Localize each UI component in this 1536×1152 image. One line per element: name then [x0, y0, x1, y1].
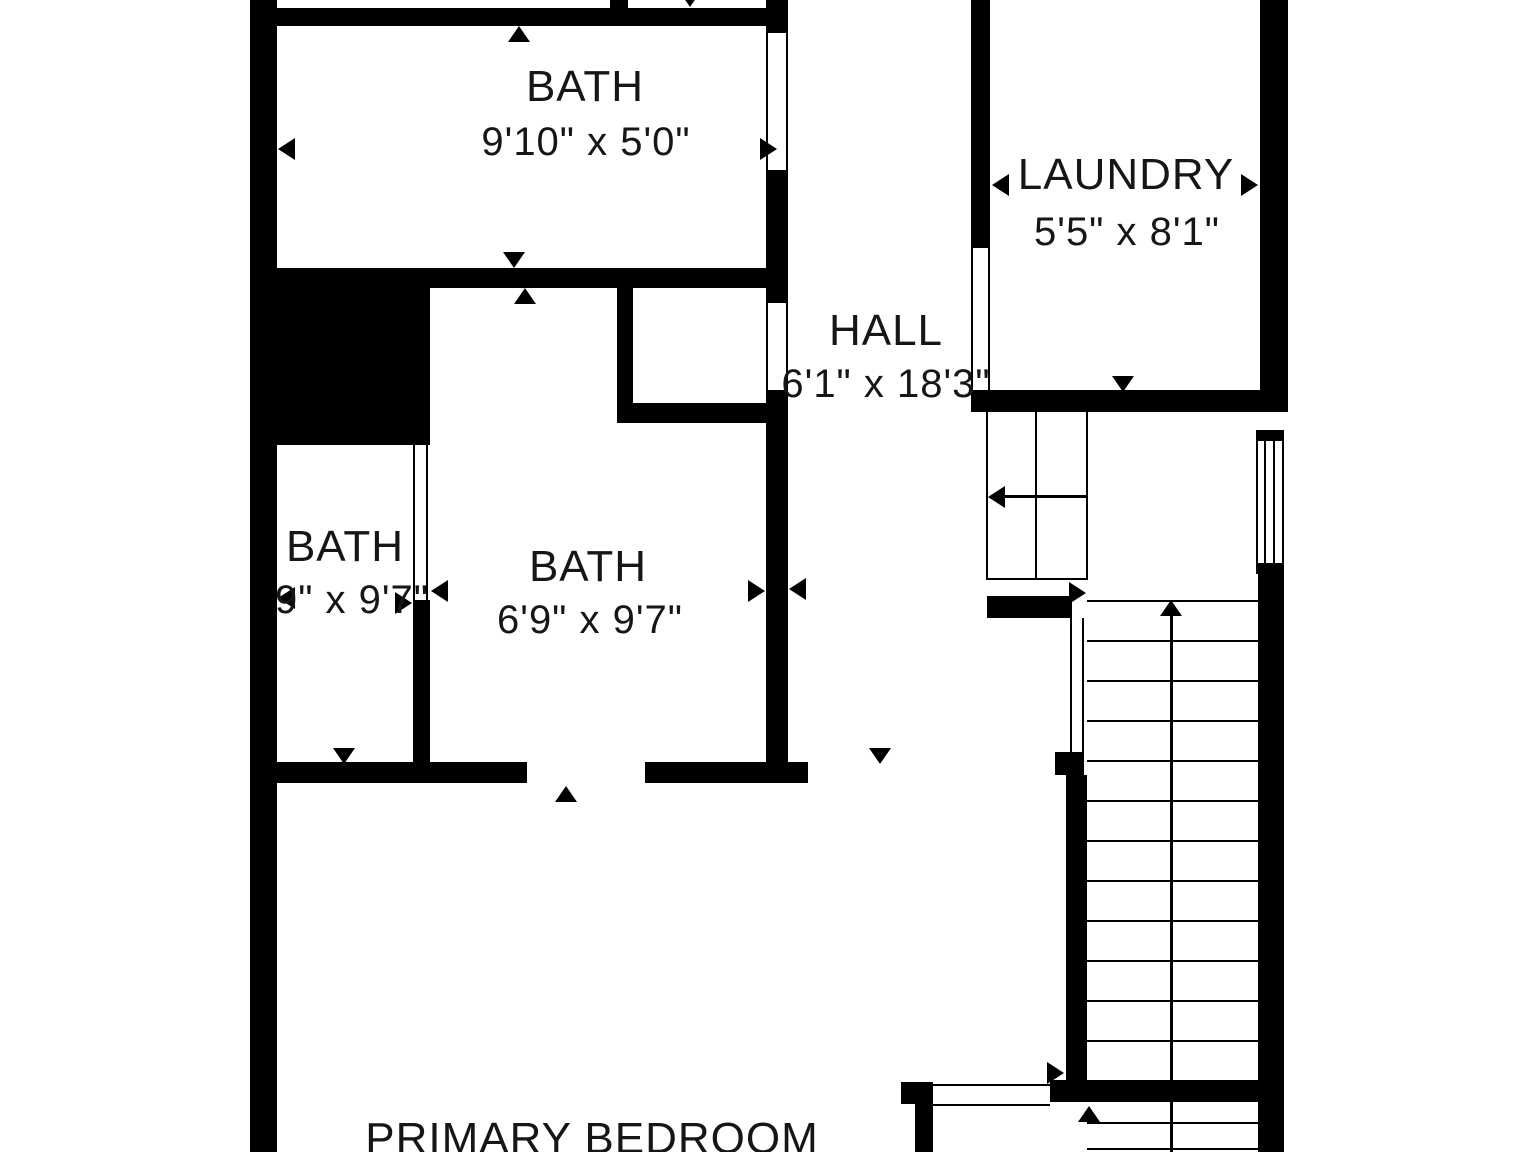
room-dims-hall: 6'1" x 18'3"	[781, 362, 990, 407]
arrow-left-icon	[988, 486, 1005, 508]
wall	[413, 600, 430, 762]
room-dims-laundry: 5'5" x 8'1"	[1034, 210, 1220, 255]
wall	[617, 403, 788, 423]
door-opening-line	[786, 33, 788, 170]
wall	[766, 390, 788, 783]
wall	[1050, 1080, 1277, 1102]
room-label-bath-left: BATH	[286, 522, 404, 572]
wall	[1055, 752, 1084, 775]
arrow-up-icon	[1078, 1106, 1100, 1122]
stair-cut-line	[1082, 618, 1084, 752]
wall	[1256, 563, 1284, 574]
arrow-down-icon	[869, 748, 891, 764]
wall	[915, 1102, 933, 1152]
arrow-down-icon	[333, 748, 355, 764]
room-dims-bath-mid: 6'9" x 9'7"	[497, 598, 683, 643]
arrow-down-icon	[679, 0, 701, 7]
arrow-down-icon	[1112, 376, 1134, 392]
floor-plan: BATH 9'10" x 5'0" LAUNDRY 5'5" x 8'1" HA…	[0, 0, 1536, 1152]
wall	[1258, 572, 1284, 1152]
window-pane-line	[1273, 432, 1275, 572]
arrow-left-icon	[431, 580, 448, 602]
arrow-left-icon	[278, 138, 295, 160]
room-label-hall: HALL	[829, 306, 943, 356]
wall	[901, 1082, 933, 1104]
stair-center-line	[1170, 612, 1173, 1080]
arrow-right-icon	[1241, 174, 1258, 196]
room-dims-bath-left: 9" x 9'7"	[275, 578, 429, 623]
wall-solid-block	[250, 268, 430, 445]
stair-center-line	[1170, 1102, 1173, 1152]
arrow-right-icon	[1047, 1062, 1064, 1084]
arrow-right-icon	[760, 138, 777, 160]
wall	[610, 0, 628, 8]
stair-direction-line	[1002, 495, 1088, 498]
window-symbol	[1256, 430, 1284, 574]
arrow-down-icon	[503, 252, 525, 268]
room-label-bath-top: BATH	[526, 62, 644, 112]
room-label-laundry: LAUNDRY	[1018, 150, 1234, 200]
wall	[766, 0, 788, 33]
arrow-up-icon	[508, 26, 530, 42]
wall	[250, 0, 277, 1152]
window-symbol	[933, 1084, 1050, 1106]
stair-cut-line	[986, 578, 1088, 580]
door-opening-line	[413, 445, 415, 600]
wall	[1066, 775, 1087, 1080]
wall	[987, 596, 1072, 618]
arrow-up-icon	[1160, 600, 1182, 616]
door-opening-line	[766, 303, 768, 390]
arrow-up-icon	[555, 786, 577, 802]
arrow-right-icon	[748, 580, 765, 602]
wall	[1260, 0, 1288, 410]
room-label-primary-bedroom: PRIMARY BEDROOM	[365, 1114, 818, 1152]
arrow-left-icon	[789, 578, 806, 600]
wall	[971, 0, 990, 248]
arrow-right-icon	[1069, 582, 1086, 604]
wall	[645, 762, 808, 783]
room-label-bath-mid: BATH	[529, 542, 647, 592]
wall	[1256, 430, 1284, 441]
wall	[250, 762, 527, 783]
arrow-left-icon	[992, 174, 1009, 196]
door-opening-line	[426, 445, 428, 600]
wall	[250, 8, 788, 26]
window-pane-line	[1264, 432, 1266, 572]
stair-cut-line	[1070, 618, 1072, 752]
wall	[971, 390, 1288, 412]
room-dims-bath-top: 9'10" x 5'0"	[481, 120, 690, 165]
arrow-up-icon	[514, 288, 536, 304]
